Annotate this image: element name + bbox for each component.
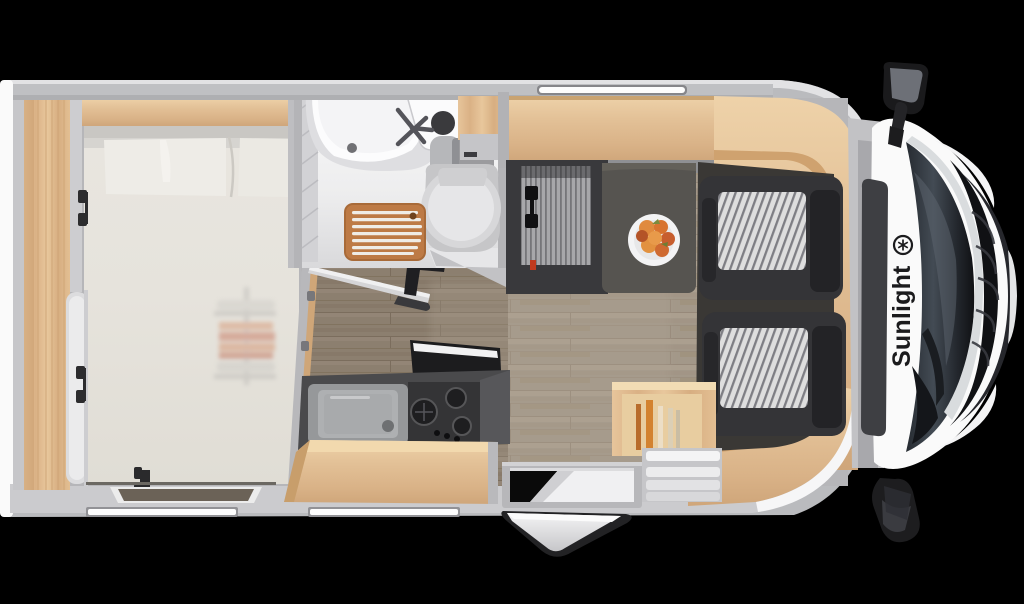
svg-text:Sunlight: Sunlight: [888, 265, 916, 367]
